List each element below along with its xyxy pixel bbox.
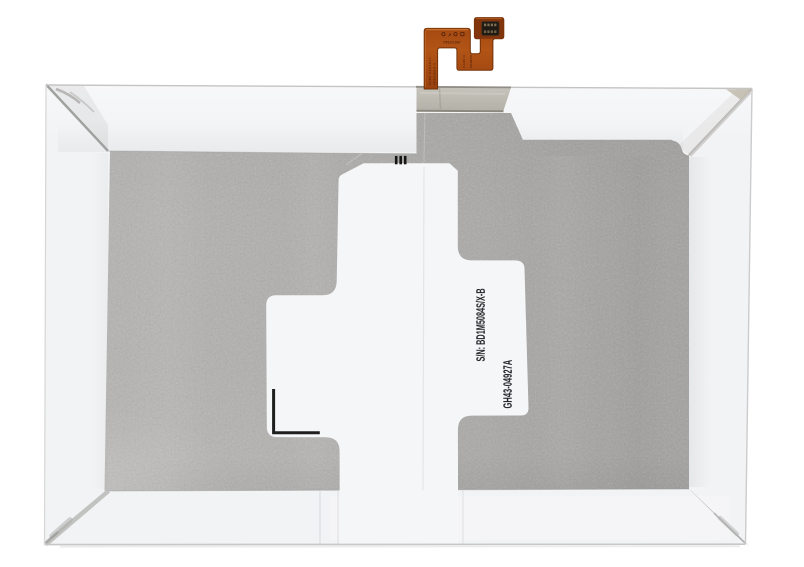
svg-text:#PROWS|f-4: #PROWS|f-4 [433,63,437,85]
svg-text:8486-0A51917: 8486-0A51917 [428,57,432,85]
svg-text:Y502C1B7: Y502C1B7 [443,41,461,45]
svg-text:↗: ↗ [448,32,452,37]
svg-text:8U4B0N: 8U4B0N [469,55,473,68]
svg-text:2.1W7.9: 2.1W7.9 [462,55,466,68]
svg-text:GH43-04927A: GH43-04927A [502,360,515,409]
svg-text:S/N: BD1M5084S/X-B: S/N: BD1M5084S/X-B [475,288,488,361]
